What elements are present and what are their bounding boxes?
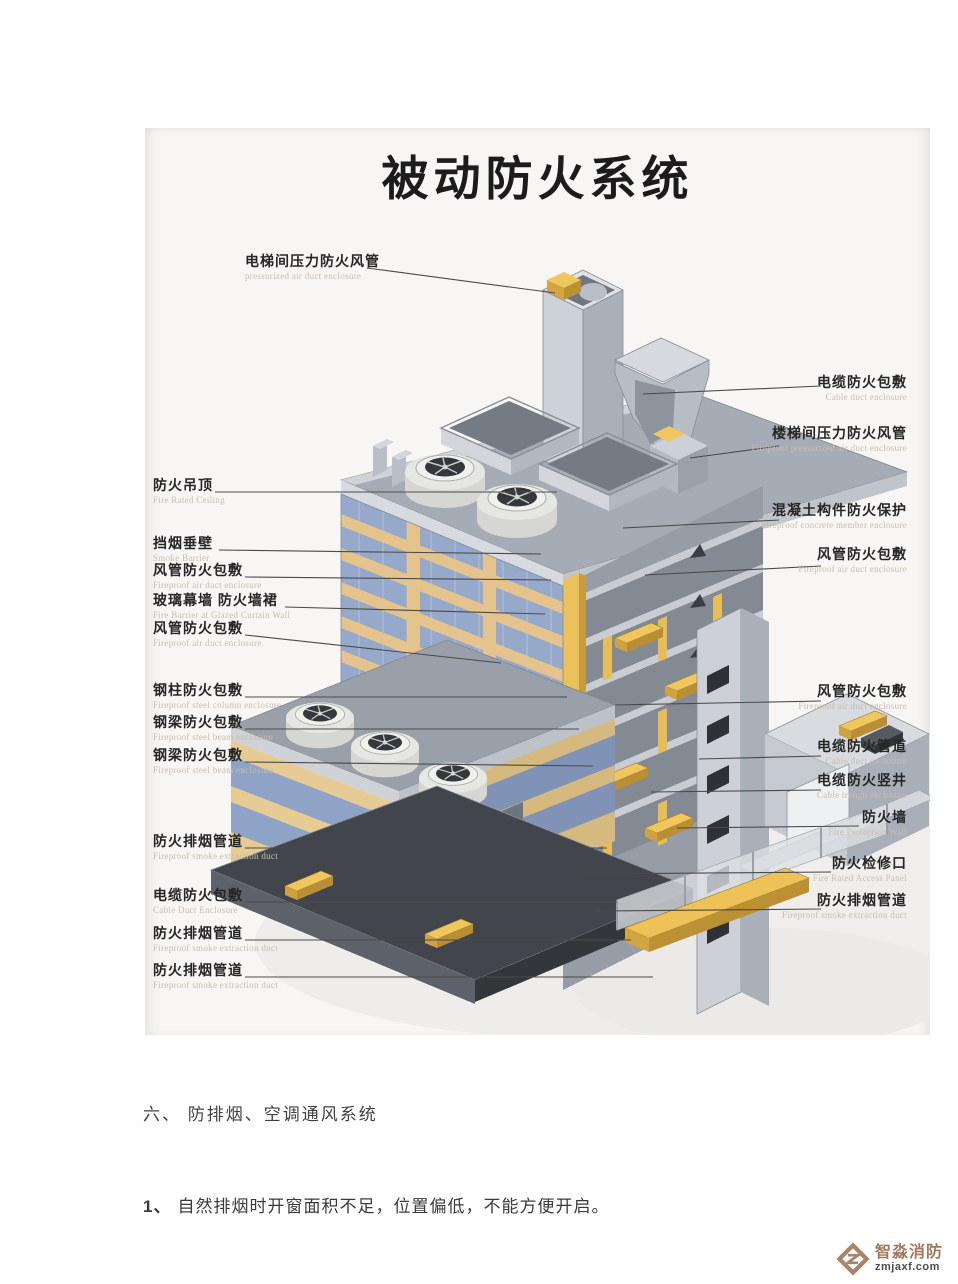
label-left-smoke-extraction-duct-3: 防火排烟管道 Fireproof smoke extraction duct <box>153 963 383 990</box>
label-right-air-duct-enclosure-1: 风管防火包敷 Fireproof air duct enclosure <box>667 547 907 574</box>
label-right-smoke-extraction-duct: 防火排烟管道 Fireproof smoke extraction duct <box>667 893 907 920</box>
logo-domain: zmjaxf.com <box>875 1262 943 1274</box>
label-left-steel-column-enclosure: 钢柱防火包敷 Fireproof steel column enclosure <box>153 683 383 710</box>
label-left-air-duct-enclosure-1: 风管防火包敷 Fireproof air duct enclosure <box>153 563 383 590</box>
label-right-stair-pressurized-duct: 楼梯间压力防火风管 Fireproof pressurized air duct… <box>667 426 907 453</box>
label-right-concrete-member-protection: 混凝土构件防火保护 Fireproof concrete member encl… <box>667 503 907 530</box>
label-left-steel-beam-enclosure-1: 钢梁防火包敷 Fireproof steel beam enclosure <box>153 715 383 742</box>
body-item-1: 1、自然排烟时开窗面积不足，位置偏低，不能方便开启。 <box>143 1192 609 1217</box>
label-left-curtain-wall-fire-barrier: 玻璃幕墙 防火墙裙 Fire Barrier at Glazed Curtain… <box>153 593 383 620</box>
label-left-air-duct-enclosure-2: 风管防火包敷 Fireproof air duct enclosure <box>153 621 383 648</box>
logo-name: 智淼消防 <box>875 1245 943 1262</box>
label-right-fire-wall: 防火墙 Fire Protection Wall <box>667 810 907 837</box>
label-left-cable-duct-enclosure: 电缆防火包敷 Cable Duct Enclosure <box>153 888 383 915</box>
footer-logo[interactable]: 智淼消防 zmjaxf.com <box>836 1242 943 1276</box>
label-left-elevator-pressure-duct: 电梯间压力防火风管 pressurized air duct enclosure <box>245 254 475 281</box>
label-right-fire-access-panel: 防火检修口 Fire Rated Access Panel <box>667 856 907 883</box>
label-right-cable-duct-enclosure: 电缆防火包敷 Cable duct enclosure <box>667 375 907 402</box>
label-left-steel-beam-enclosure-2: 钢梁防火包敷 Fireproof steel beam enclosure <box>153 748 383 775</box>
logo-diamond-icon <box>836 1242 870 1276</box>
label-left-smoke-barrier: 挡烟垂壁 Smoke Barrier <box>153 536 383 563</box>
label-right-air-duct-enclosure-2: 风管防火包敷 Fireproof air duct enclosure <box>667 684 907 711</box>
label-left-fire-rated-ceiling: 防火吊顶 Fire Rated Ceiling <box>153 478 383 505</box>
section-heading: 六、 防排烟、空调通风系统 <box>143 1100 378 1125</box>
document-page: 被动防火系统 <box>0 0 958 1284</box>
body-item-text: 自然排烟时开窗面积不足，位置偏低，不能方便开启。 <box>177 1197 609 1216</box>
label-left-smoke-extraction-duct-1: 防火排烟管道 Fireproof smoke extraction duct <box>153 834 383 861</box>
label-left-smoke-extraction-duct-2: 防火排烟管道 Fireproof smoke extraction duct <box>153 926 383 953</box>
passive-fire-protection-diagram: 被动防火系统 <box>145 128 930 1035</box>
body-item-number: 1、 <box>143 1197 171 1216</box>
label-right-cable-fire-duct: 电缆防火管道 Cable duct enclosure <box>667 739 907 766</box>
label-right-cable-shaft: 电缆防火竖井 Cable trough enclosure <box>667 773 907 800</box>
